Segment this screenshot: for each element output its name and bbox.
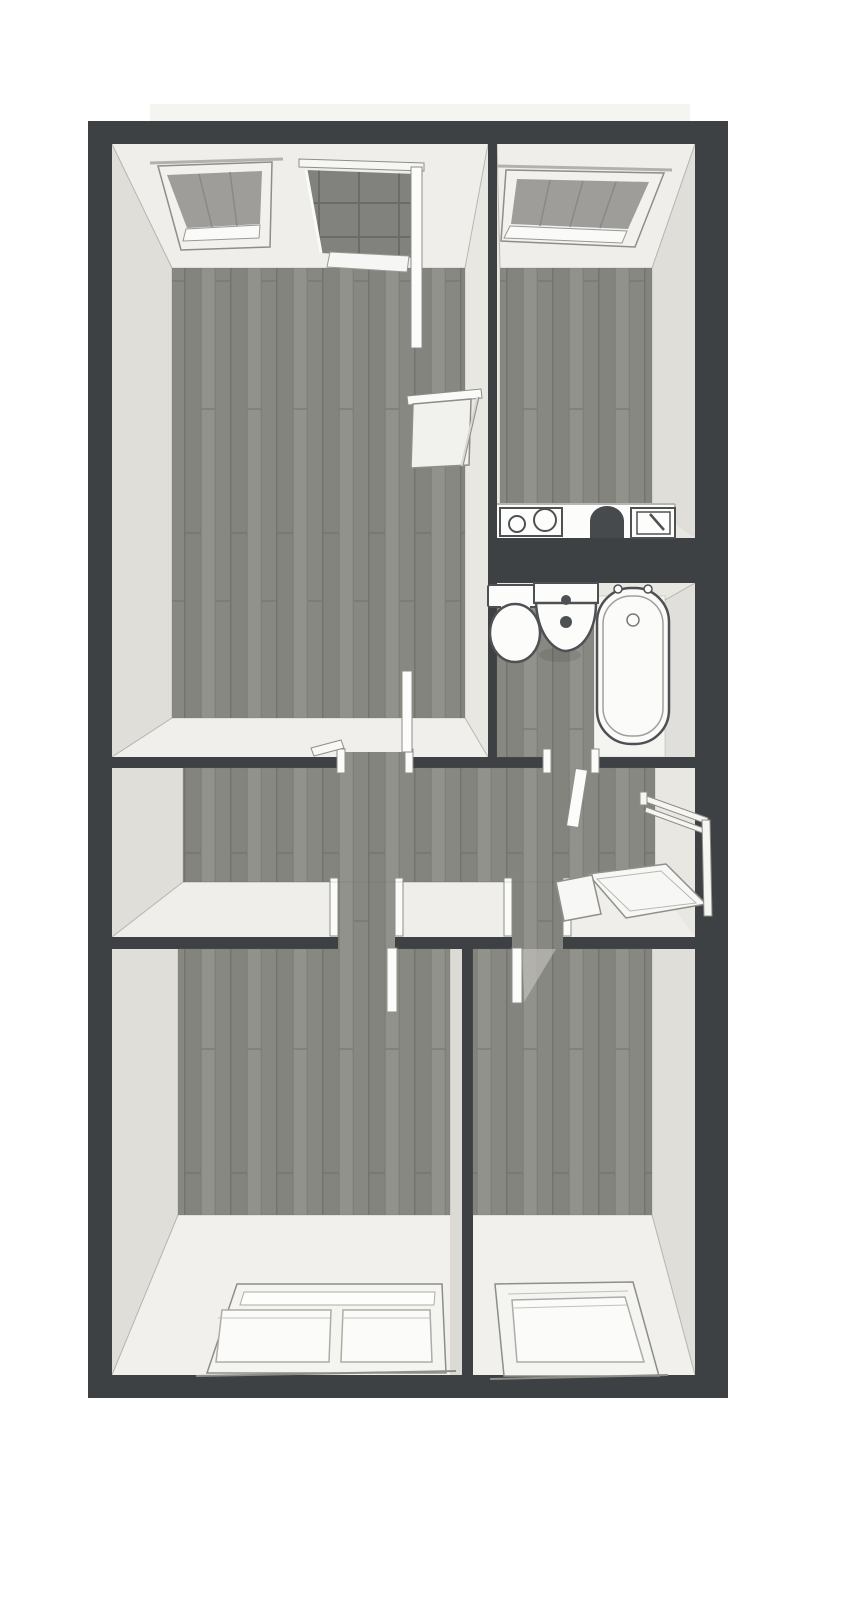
open-door-leaf-top-left-room <box>402 671 412 752</box>
toilet-bowl <box>490 604 540 662</box>
roof-edge-strip <box>150 104 690 121</box>
balcony-door-glazing <box>306 170 417 258</box>
floor-room-bottom-left <box>178 949 450 1215</box>
counter-stool <box>590 506 624 538</box>
doorway-bathroom-to-hallway <box>543 749 599 773</box>
balcony-door-open-leaf <box>411 167 422 348</box>
window-transom <box>240 1292 435 1305</box>
basin-drain <box>560 616 572 628</box>
bathtub-rim <box>597 588 669 744</box>
floor-plan-canvas <box>0 0 867 1600</box>
table-top <box>411 399 471 468</box>
stair-step <box>556 875 601 921</box>
open-door-leaf-bottom-right-room <box>512 948 522 1003</box>
bathtub <box>597 585 669 744</box>
double-window-bottom-left <box>196 1284 456 1376</box>
floor-room-top-right <box>500 268 652 505</box>
basin-faucet <box>561 595 571 605</box>
floor-room-bottom-right <box>473 949 652 1215</box>
kitchenette-counter <box>497 504 675 538</box>
divider-wall-face <box>450 949 462 1375</box>
stair-railing-newel <box>640 792 647 805</box>
roof-window-glass <box>511 179 649 229</box>
open-door-leaf-bottom-left-room <box>387 948 397 1012</box>
bathtub-tap <box>614 585 622 593</box>
stair-railing-post <box>702 820 712 916</box>
bathtub-tap <box>644 585 652 593</box>
floor-plan-render <box>0 0 867 1600</box>
doorway-hallway-to-bottom-left <box>330 878 403 950</box>
